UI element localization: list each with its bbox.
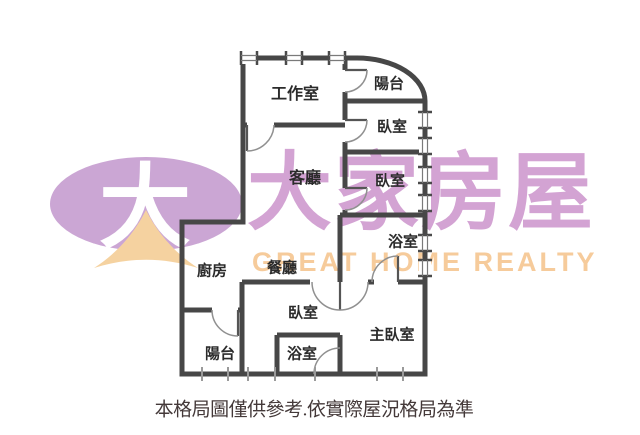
room-label-balcony-bottom: 陽台	[205, 343, 235, 364]
room-label-bedroom-2: 臥室	[375, 170, 405, 191]
room-label-dining-room: 餐廳	[267, 257, 297, 278]
room-label-bedroom-3: 臥室	[288, 302, 318, 323]
room-label-bedroom-1: 臥室	[377, 116, 407, 137]
room-label-living-room: 客廳	[289, 164, 321, 188]
room-label-master-bedroom: 主臥室	[369, 324, 414, 345]
room-label-bathroom-lower: 浴室	[287, 343, 317, 364]
floor-plan-page: { "watermark": { "logo_symbol": "大", "br…	[0, 0, 640, 430]
room-label-kitchen: 廚房	[197, 260, 227, 281]
room-label-bathroom-upper: 浴室	[388, 231, 418, 252]
room-label-workroom: 工作室	[271, 80, 319, 104]
disclaimer-caption: 本格局圖僅供參考.依實際屋況格局為準	[155, 395, 474, 422]
room-labels: 工作室 陽台 臥室 客廳 臥室 浴室 廚房 餐廳 臥室 主臥室 浴室 陽台 本格…	[0, 0, 640, 430]
room-label-balcony-top: 陽台	[374, 73, 404, 94]
